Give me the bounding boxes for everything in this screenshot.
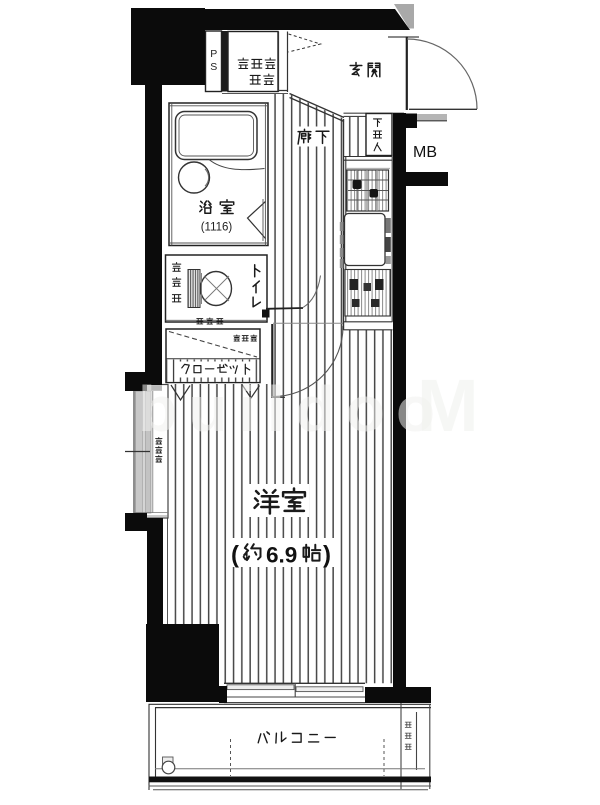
svg-text:(: ( — [231, 542, 239, 569]
svg-text:): ) — [323, 542, 331, 569]
svg-text:6.9: 6.9 — [266, 543, 297, 568]
svg-text:buildoo: buildoo — [138, 373, 446, 445]
svg-text:P: P — [210, 48, 217, 60]
svg-text:MB: MB — [413, 144, 437, 161]
svg-text:S: S — [210, 61, 217, 73]
svg-text:M: M — [417, 364, 479, 447]
svg-text:(1116): (1116) — [201, 222, 233, 234]
